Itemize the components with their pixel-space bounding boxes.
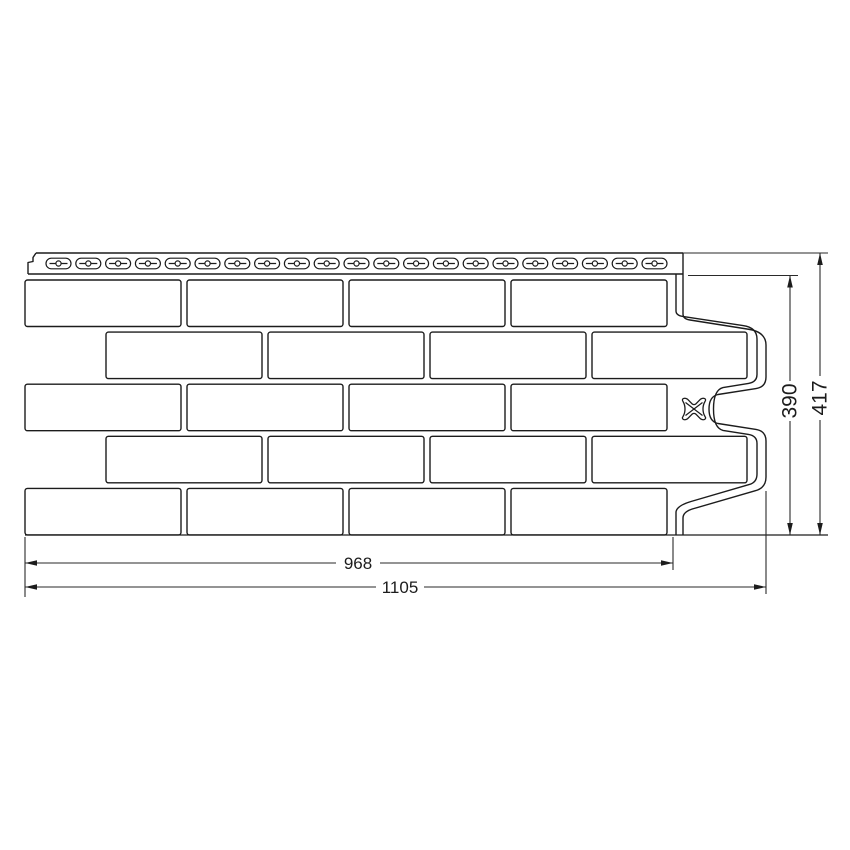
nail-slot-icon [553, 258, 578, 269]
brick [592, 332, 747, 379]
arrowhead-down [817, 523, 823, 535]
arrowhead-left [25, 560, 37, 566]
facade-panel-drawing: 968 1105 390 [0, 0, 850, 850]
brick [106, 436, 262, 483]
dim-label-total-width: 1105 [382, 578, 419, 597]
nail-slot-icon [612, 258, 637, 269]
panel-right-edge [676, 253, 766, 535]
nail-slot-icon [314, 258, 339, 269]
arrowhead-up [787, 276, 793, 288]
nail-slot-icon [433, 258, 458, 269]
nail-slot-icon [46, 258, 71, 269]
technical-drawing-page: 968 1105 390 [0, 0, 850, 850]
nail-slot-icon [374, 258, 399, 269]
nail-slot-icon [642, 258, 667, 269]
brick [430, 332, 586, 379]
brick [511, 488, 667, 535]
brick [430, 436, 586, 483]
brick [349, 488, 505, 535]
arrowhead-up [817, 253, 823, 265]
brick [511, 384, 667, 431]
dim-label-useful-height: 390 [779, 383, 802, 418]
dim-968: 968 [25, 554, 673, 573]
brick [268, 436, 424, 483]
nail-slot-icon [165, 258, 190, 269]
arrowhead-down [787, 523, 793, 535]
brick [349, 384, 505, 431]
nail-slot-icon [463, 258, 488, 269]
nail-slot-icon [344, 258, 369, 269]
bowtie-lock-icon [682, 398, 705, 419]
arrowhead-left [25, 584, 37, 590]
dim-label-total-height: 417 [809, 380, 832, 415]
nail-slot-icon [76, 258, 101, 269]
nail-slot-icon [523, 258, 548, 269]
nail-slot-icon [195, 258, 220, 269]
brick [106, 332, 262, 379]
brick [592, 436, 747, 483]
brick-grid [25, 280, 747, 535]
dim-label-useful-width: 968 [344, 554, 372, 573]
brick [187, 384, 343, 431]
brick [187, 488, 343, 535]
brick [25, 280, 181, 327]
nail-slot-icon [135, 258, 160, 269]
brick [25, 384, 181, 431]
nail-hem-left-step [28, 253, 36, 274]
brick [349, 280, 505, 327]
right-edge-outer-contour [683, 253, 766, 535]
nail-slot-icon [582, 258, 607, 269]
dim-417: 417 [809, 253, 832, 535]
brick [511, 280, 667, 327]
brick [25, 488, 181, 535]
dim-1105: 1105 [25, 578, 766, 597]
arrowhead-right [661, 560, 673, 566]
nail-slot-row [46, 258, 667, 269]
nail-slot-icon [225, 258, 250, 269]
nail-slot-icon [404, 258, 429, 269]
arrowhead-right [754, 584, 766, 590]
nail-slot-icon [493, 258, 518, 269]
brick [187, 280, 343, 327]
nail-slot-icon [106, 258, 131, 269]
dim-390: 390 [779, 276, 802, 536]
nail-slot-icon [284, 258, 309, 269]
brick [268, 332, 424, 379]
nail-slot-icon [255, 258, 280, 269]
